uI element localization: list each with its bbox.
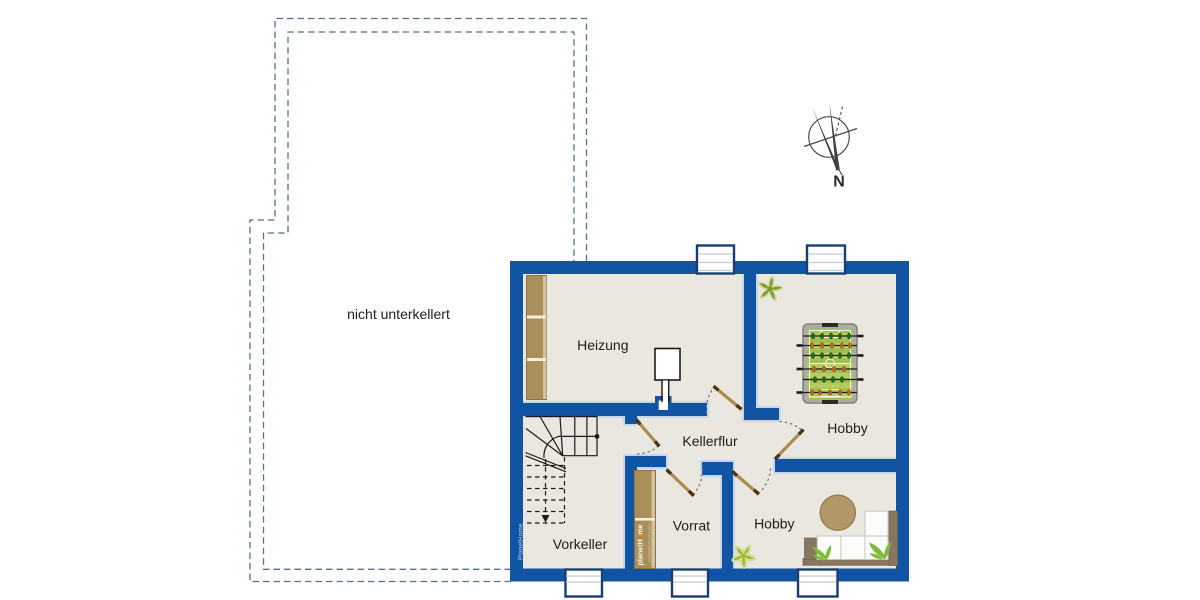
svg-text:planetHome: planetHome [636,524,645,565]
svg-text:PlanetHome: PlanetHome [518,523,525,560]
svg-text:Hobby: Hobby [754,516,794,532]
svg-text:nicht unterkellert: nicht unterkellert [347,306,450,322]
svg-text:Hobby: Hobby [827,420,867,436]
svg-text:Kellerflur: Kellerflur [682,433,738,449]
svg-text:Vorrat: Vorrat [673,518,710,534]
svg-text:Heizung: Heizung [577,337,628,353]
svg-text:N: N [833,174,845,191]
svg-text:Vorkeller: Vorkeller [553,536,608,552]
svg-text:Immobilien für ein Leben: Immobilien für ein Leben [648,523,652,562]
